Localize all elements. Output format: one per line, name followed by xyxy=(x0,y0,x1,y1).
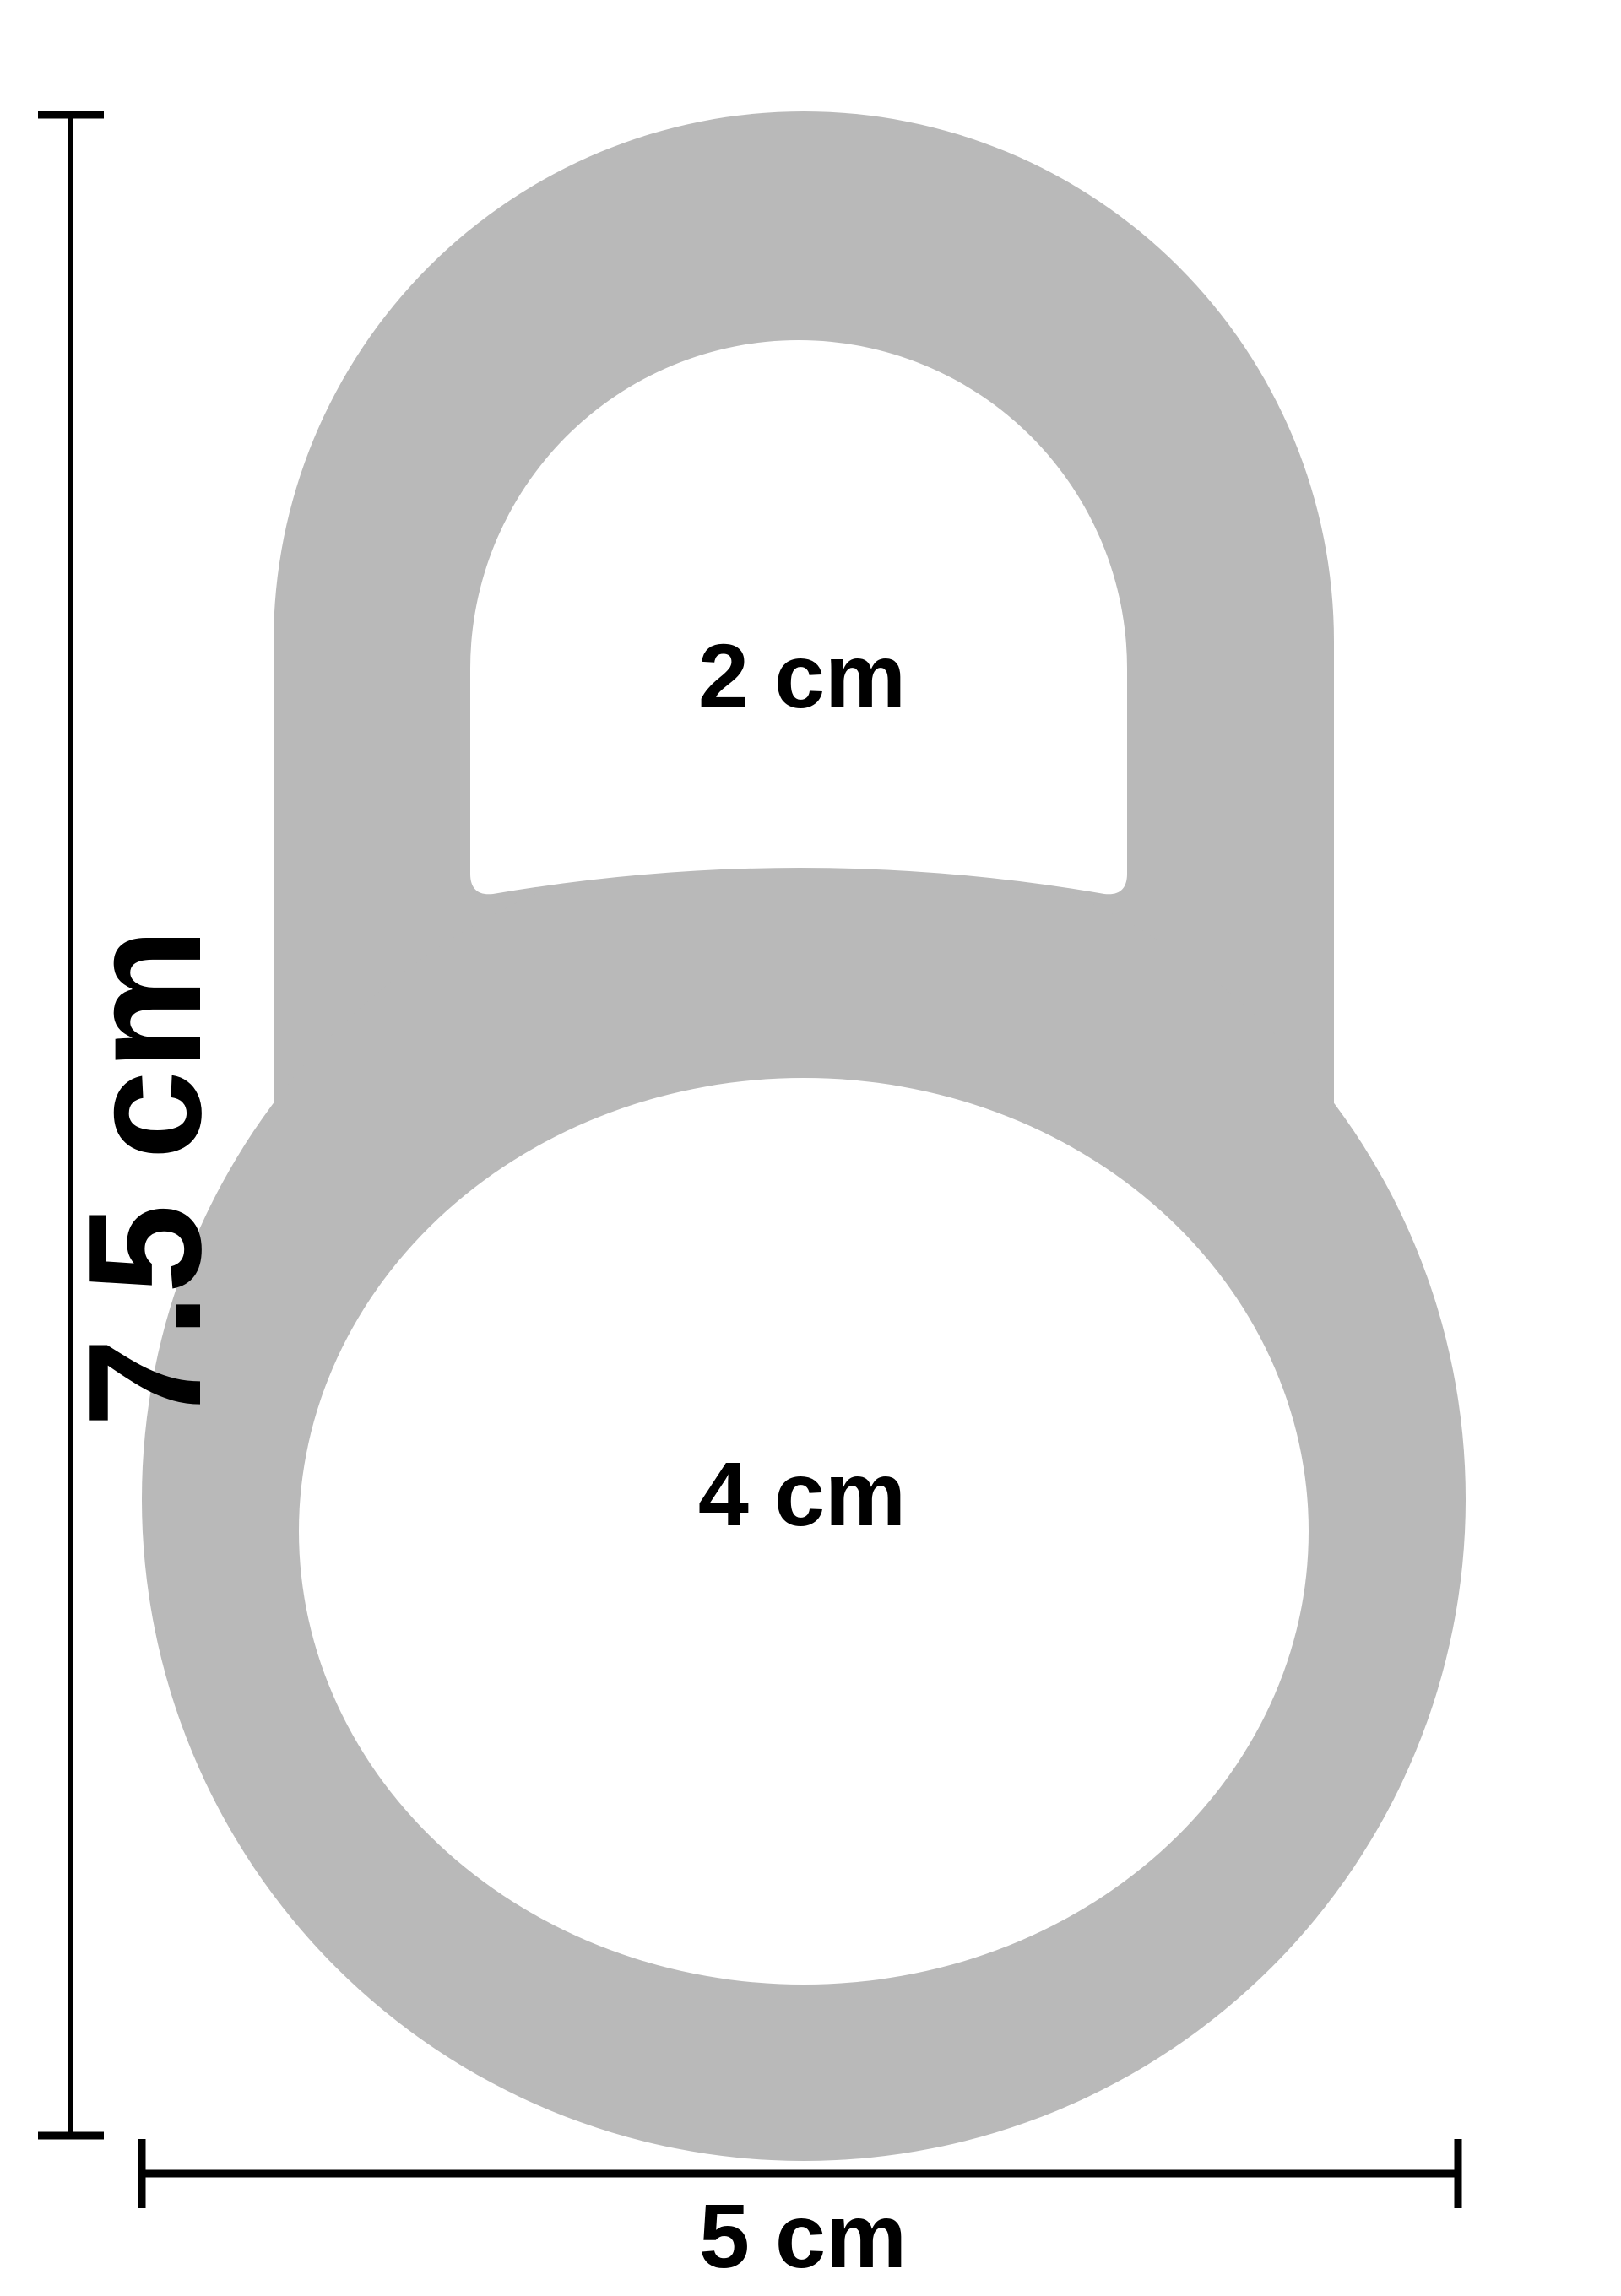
total-width-label: 5 cm xyxy=(699,2185,907,2287)
diagram-canvas: 2 cm 4 cm 5 cm 7.5 cm xyxy=(0,0,1621,2296)
total-height-label: 7.5 cm xyxy=(56,928,235,1427)
lower-hole-label: 4 cm xyxy=(698,1443,906,1545)
dimension-diagram: 2 cm 4 cm 5 cm 7.5 cm xyxy=(0,0,1621,2296)
upper-hole-label: 2 cm xyxy=(698,625,906,727)
